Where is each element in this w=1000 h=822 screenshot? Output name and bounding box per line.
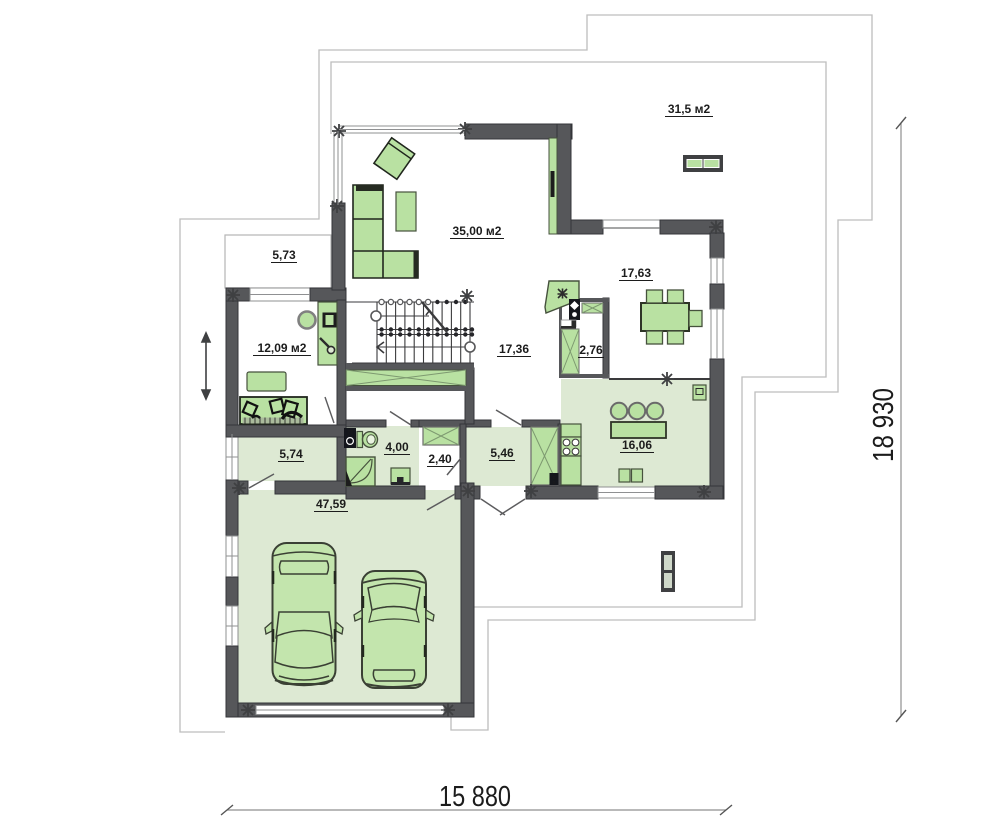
svg-text:31,5 м2: 31,5 м2: [668, 102, 711, 116]
svg-text:17,63: 17,63: [621, 266, 651, 280]
svg-text:18 930: 18 930: [868, 388, 900, 462]
svg-text:47,59: 47,59: [316, 497, 346, 511]
svg-text:4,00: 4,00: [385, 440, 409, 454]
svg-text:77: 77: [347, 430, 353, 436]
svg-text:17,36: 17,36: [499, 342, 529, 356]
svg-text:2,40: 2,40: [428, 452, 452, 466]
svg-text:5,46: 5,46: [490, 446, 514, 460]
svg-text:15 880: 15 880: [439, 781, 511, 813]
svg-text:5,73: 5,73: [272, 248, 296, 262]
svg-text:S: S: [552, 480, 555, 485]
svg-text:16,06: 16,06: [622, 438, 652, 452]
svg-text:2,76: 2,76: [579, 343, 603, 357]
svg-text:12,09 м2: 12,09 м2: [258, 341, 307, 355]
svg-text:35,00 м2: 35,00 м2: [453, 224, 502, 238]
svg-text:5,74: 5,74: [279, 447, 303, 461]
